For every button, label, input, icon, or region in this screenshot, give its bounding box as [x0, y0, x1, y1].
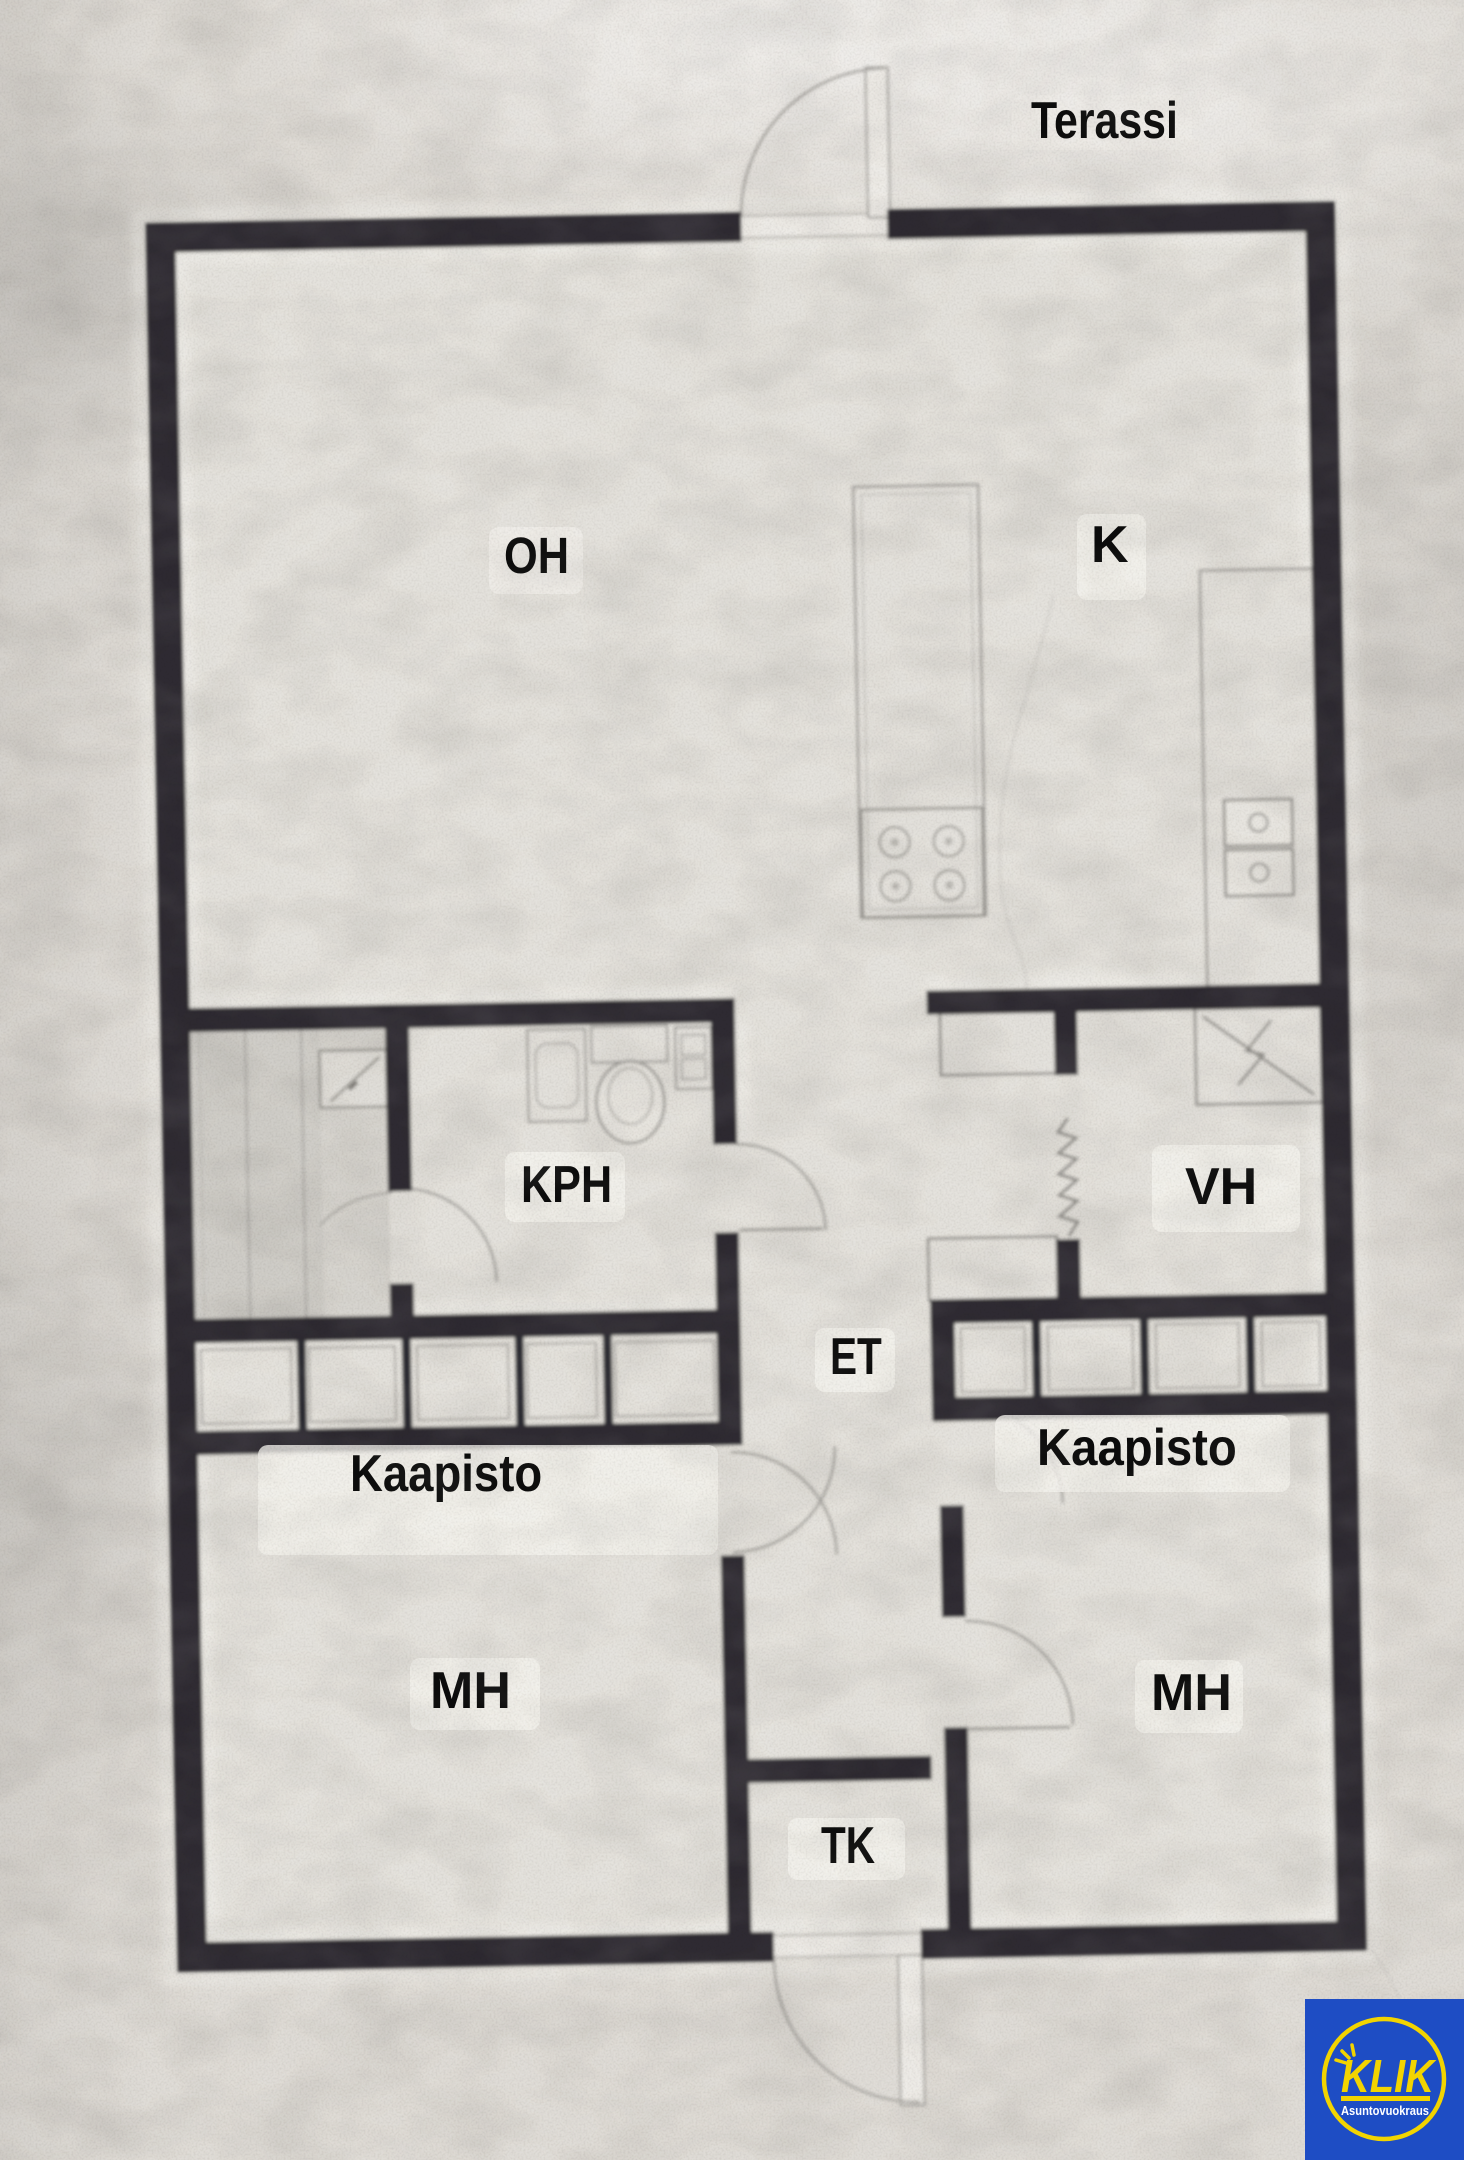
svg-text:Asuntovuokraus: Asuntovuokraus [1341, 2104, 1429, 2118]
svg-text:KLIK: KLIK [1341, 2050, 1436, 2102]
